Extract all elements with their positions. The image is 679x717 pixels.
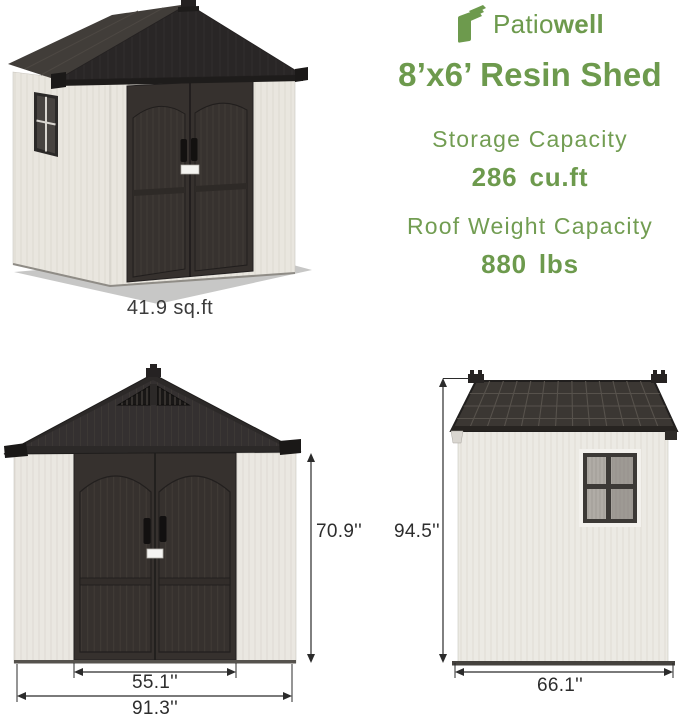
double-doors-front <box>74 453 236 660</box>
roof-weight-capacity-label: Roof Weight Capacity <box>382 211 678 241</box>
roof-weight-capacity-value: 880 lbs <box>382 249 678 279</box>
shed-perspective-illustration <box>0 0 340 330</box>
door-label-plate <box>181 165 199 174</box>
gable-roof <box>8 0 308 89</box>
total-width-dimension: 91.3'' <box>105 698 205 717</box>
brand-logo: Patiowell <box>388 3 672 45</box>
door-width-dimension: 55.1'' <box>105 672 205 694</box>
storage-capacity-value: 286 cu.ft <box>382 162 678 192</box>
door-handle <box>181 139 188 162</box>
door-handle <box>191 138 198 161</box>
shed-front-illustration <box>0 360 370 717</box>
gable-roof-front <box>4 364 301 458</box>
side-depth-dimension: 66.1'' <box>510 675 610 697</box>
product-infographic: 41.9 sq.ft Patiowell 8’x6’ Resin Shed St… <box>0 0 679 717</box>
footprint-label: 41.9 sq.ft <box>80 297 260 320</box>
door-handle <box>144 518 151 544</box>
side-window-elevation <box>579 449 641 527</box>
door-label-plate <box>147 549 163 558</box>
brand-name: Patiowell <box>493 9 604 40</box>
patiowell-logo-icon <box>456 5 486 43</box>
double-doors <box>127 79 253 282</box>
storage-capacity-label: Storage Capacity <box>382 124 678 154</box>
door-handle <box>160 516 167 542</box>
side-window <box>34 92 58 157</box>
product-title: 8’x6’ Resin Shed <box>382 56 678 94</box>
side-height-dimension: 94.5'' <box>366 521 440 543</box>
